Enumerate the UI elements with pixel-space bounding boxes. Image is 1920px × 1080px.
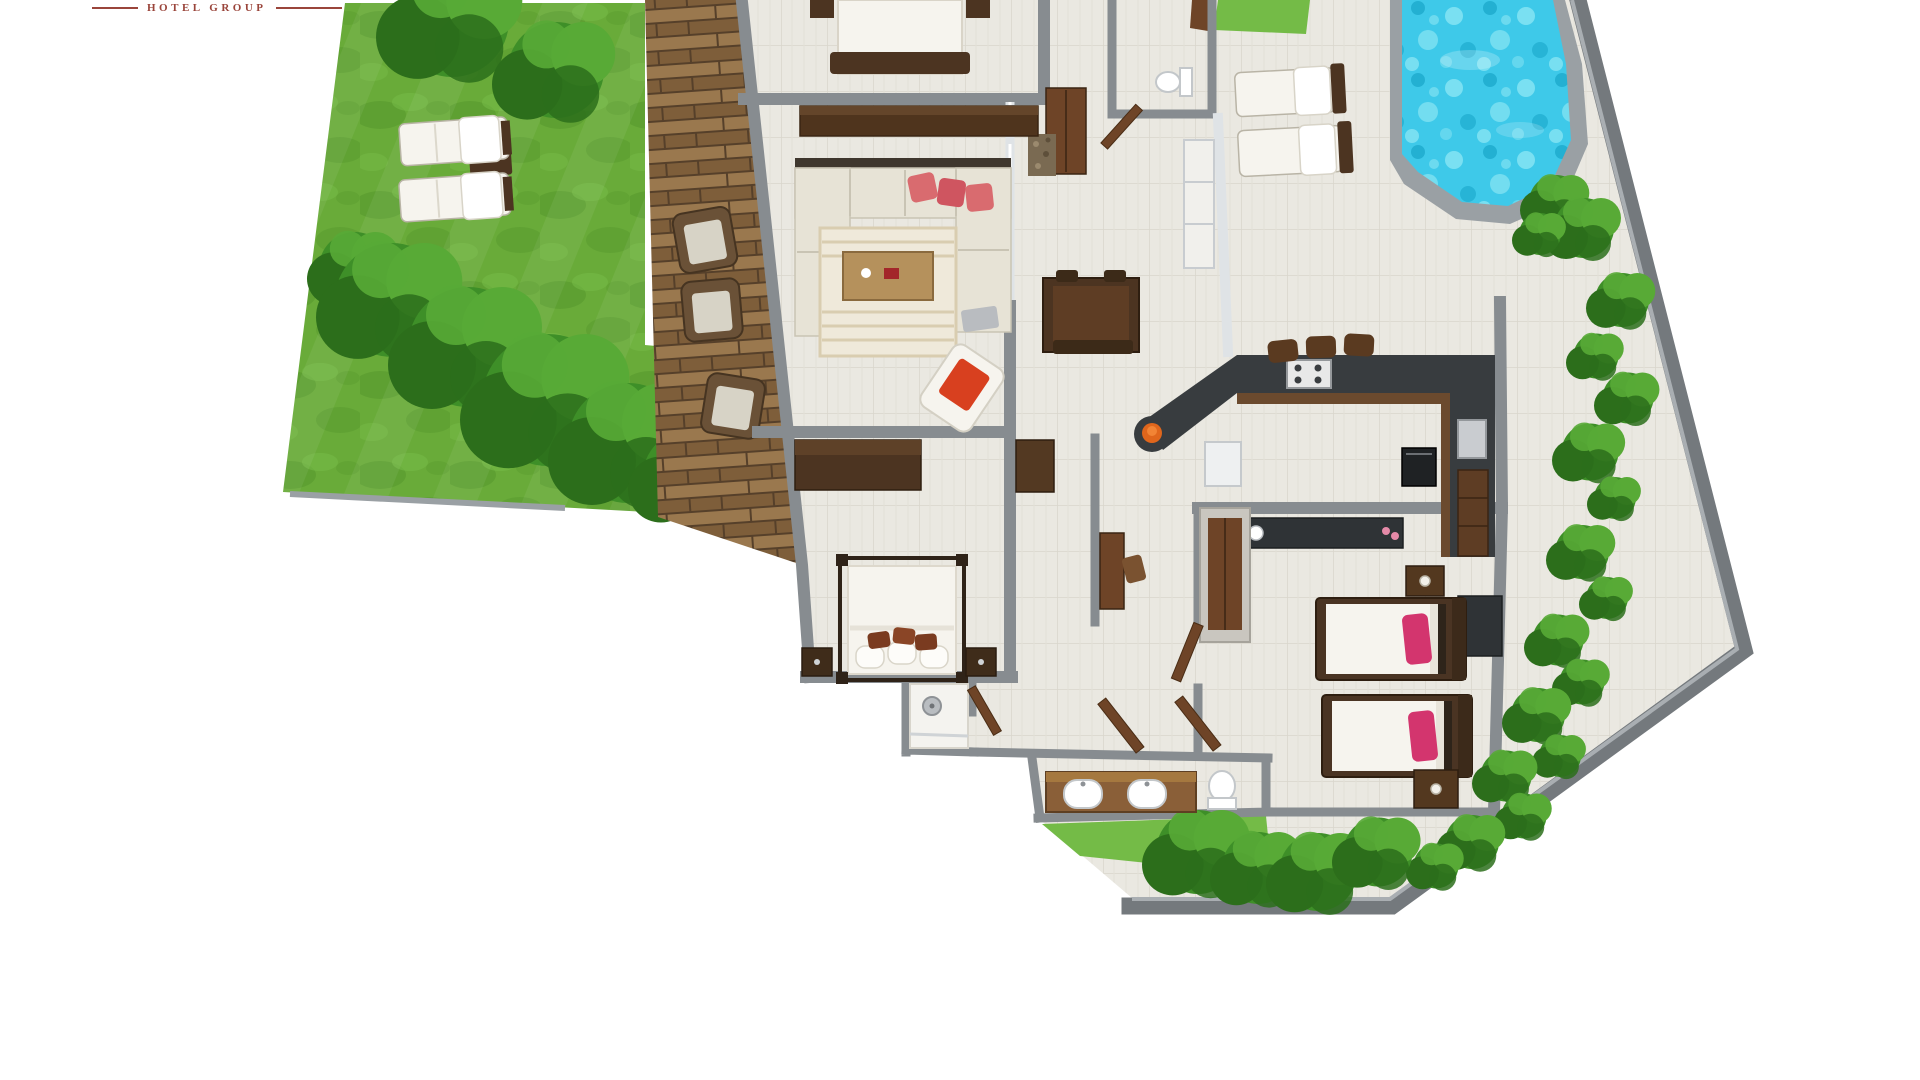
pink-pillow bbox=[1401, 613, 1432, 665]
top-grass-patch bbox=[1214, 0, 1310, 34]
guest-bed-foot-bench bbox=[830, 52, 970, 74]
toilet-tank bbox=[1180, 68, 1192, 96]
wardrobe bbox=[1200, 508, 1250, 642]
toilet-bowl bbox=[1156, 72, 1180, 92]
dining-set bbox=[1043, 270, 1139, 354]
wicker-armchair bbox=[671, 205, 739, 274]
shower-glass bbox=[910, 734, 968, 736]
white-cabinet bbox=[1205, 442, 1241, 486]
kitchen-counter-wood-face bbox=[1237, 393, 1453, 404]
shelf-niche-wall bbox=[1184, 140, 1214, 268]
hall-cabinet bbox=[1016, 440, 1054, 492]
cup bbox=[1391, 532, 1399, 540]
tall-kitchen-cabinet bbox=[1458, 470, 1488, 556]
dining-bench bbox=[1053, 340, 1133, 354]
four-poster-bed bbox=[836, 554, 968, 684]
minibar-counter bbox=[1243, 518, 1403, 548]
guest-nightstand bbox=[810, 0, 834, 18]
kettle bbox=[1249, 526, 1263, 540]
coffee-table bbox=[843, 252, 933, 300]
lamp bbox=[1420, 576, 1430, 586]
bar-stool bbox=[1267, 338, 1299, 363]
cup bbox=[1382, 527, 1390, 535]
sun-lounger bbox=[1234, 63, 1346, 119]
bar-stool bbox=[1343, 333, 1374, 357]
toilet-tank bbox=[1208, 798, 1236, 809]
floor-plan-rendering bbox=[0, 0, 1920, 1080]
cooktop bbox=[1287, 360, 1331, 388]
kitchen-counter-top-arm bbox=[1237, 355, 1453, 393]
kitchen-twin-east-wall bbox=[1494, 302, 1502, 812]
corridor-south-wall bbox=[974, 752, 1268, 758]
toilet-bowl bbox=[1209, 771, 1235, 801]
sun-lounger bbox=[398, 170, 514, 224]
guest-nightstand bbox=[966, 0, 990, 18]
twin-bed bbox=[1316, 598, 1466, 680]
pink-pillow bbox=[1407, 710, 1438, 762]
sun-lounger bbox=[399, 114, 513, 168]
floor-plan-page: HOTEL GROUP bbox=[0, 0, 1920, 1080]
shower-room bbox=[910, 684, 968, 748]
lamp bbox=[1431, 784, 1441, 794]
hall-desk bbox=[1100, 533, 1124, 609]
sun-lounger bbox=[1237, 121, 1354, 179]
bar-stool bbox=[1306, 335, 1337, 358]
decor-box bbox=[884, 268, 899, 279]
kitchen-sink bbox=[1458, 420, 1486, 458]
pebble-decor-strip bbox=[1028, 134, 1056, 176]
wicker-armchair bbox=[680, 278, 743, 343]
twin-bed bbox=[1322, 695, 1472, 777]
